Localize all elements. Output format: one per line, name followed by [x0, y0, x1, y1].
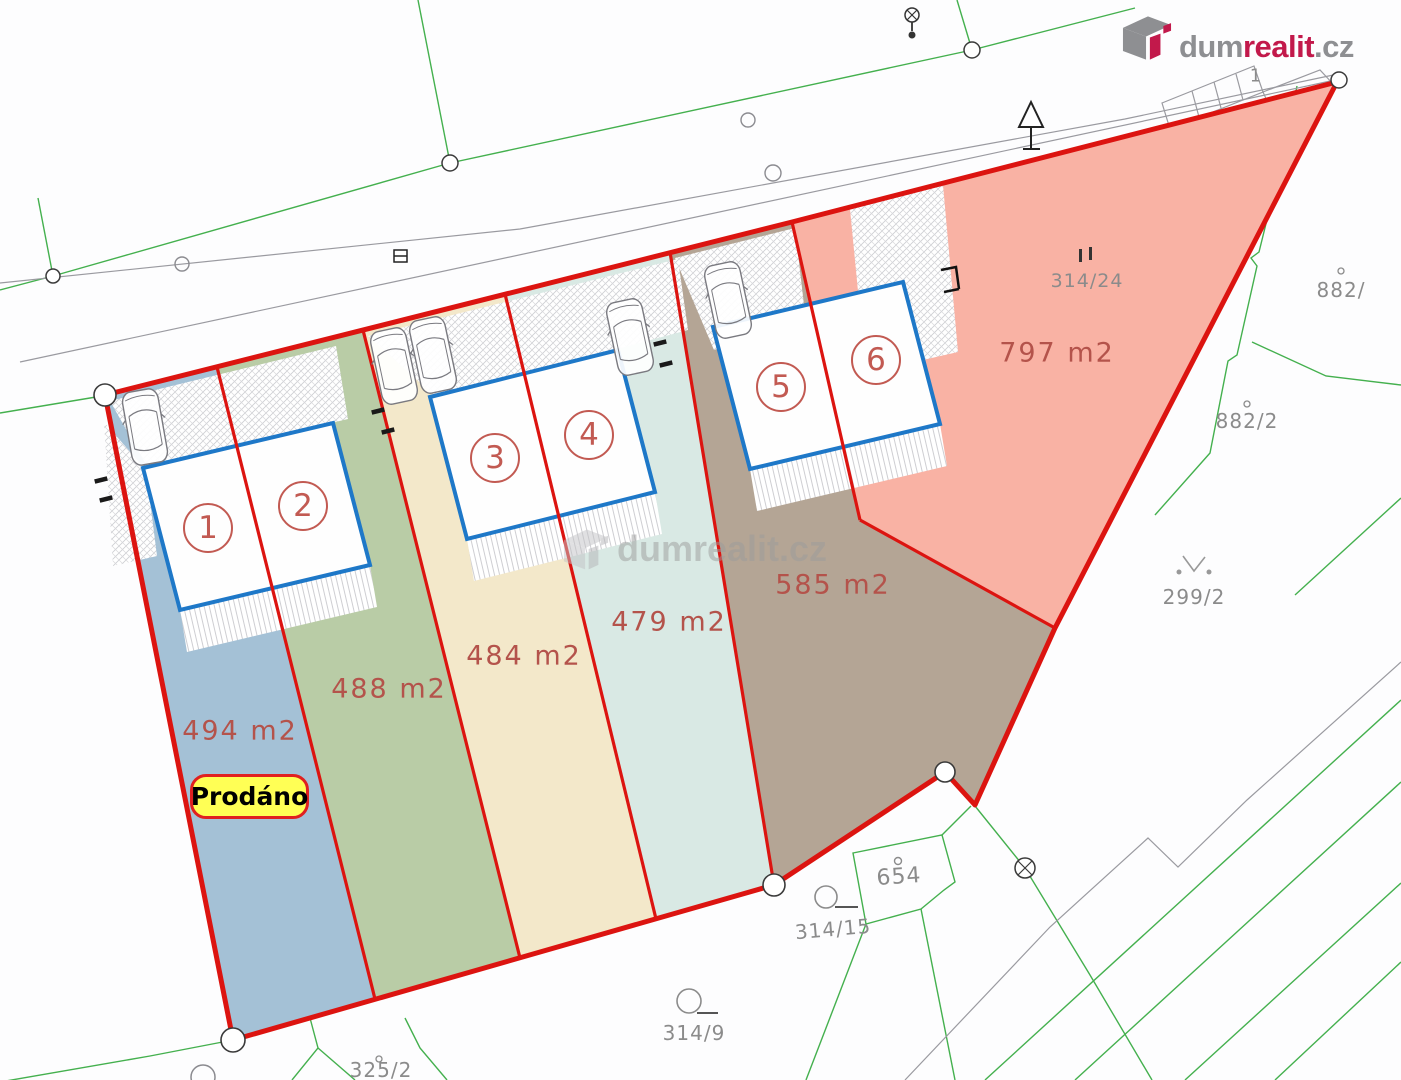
cadastral-line — [418, 0, 450, 163]
plot-5-area-label: 585 m2 — [775, 570, 891, 601]
boundary-corner-marker — [1331, 72, 1347, 88]
cadastral-line — [292, 1018, 318, 1080]
cadastral-site-plan: dumrealit.cz 494 m2 488 m2 484 m2 479 m2… — [0, 0, 1401, 1080]
parcel-label-325-2: 325/2 — [350, 1058, 413, 1080]
street-lamp-icon — [905, 8, 919, 39]
watermark: dumrealit.cz — [563, 527, 827, 571]
boundary-corner-marker — [221, 1028, 245, 1052]
utility-box-icon — [394, 250, 407, 262]
cadastral-line — [0, 1040, 233, 1080]
survey-point-marker — [964, 42, 980, 58]
signpost-triangle-icon — [1019, 102, 1043, 149]
crossing-point-marker — [1015, 858, 1035, 878]
brand-text-dum: dum — [1179, 29, 1243, 64]
watermark-text: dumrealit.cz — [617, 531, 827, 567]
cadastral-line — [921, 909, 955, 1080]
plot-4-area-label: 479 m2 — [611, 607, 727, 638]
parcel-314-9-symbol — [677, 989, 718, 1013]
survey-point-marker — [46, 269, 60, 283]
cadastral-line — [38, 198, 53, 276]
cadastral-line — [975, 806, 1152, 1080]
plot-6-area-label: 797 m2 — [999, 338, 1115, 369]
plot-2-number: 2 — [278, 481, 328, 531]
plot-1-number: 1 — [183, 503, 233, 553]
plot-3-area-label: 484 m2 — [466, 641, 582, 672]
parcel-label-299-2: 299/2 — [1163, 585, 1226, 609]
parcel-label-314-9: 314/9 — [663, 1021, 726, 1045]
outbuilding-divider — [1236, 74, 1243, 100]
brand-logo: dumrealit.cz — [1122, 14, 1354, 61]
parcel-882-2-dot — [1244, 401, 1250, 407]
brand-logo-text: dumrealit.cz — [1179, 32, 1354, 61]
plot-3-number: 3 — [470, 433, 520, 483]
plot-5-number: 5 — [756, 362, 806, 412]
brand-text-realit: realit — [1243, 29, 1314, 64]
brand-logo-icon — [1122, 14, 1172, 61]
tree-circle-icon — [191, 1065, 215, 1080]
parcel-label-1: 1 — [1250, 66, 1262, 87]
boundary-corner-marker — [763, 874, 785, 896]
brand-text-cz: .cz — [1314, 29, 1354, 64]
plot-6-number: 6 — [851, 335, 901, 385]
survey-point-marker — [442, 155, 458, 171]
cadastral-line — [1275, 962, 1401, 1080]
sold-badge: Prodáno — [190, 774, 309, 819]
parcel-299-2-symbol — [1177, 556, 1212, 575]
outbuilding-divider — [1214, 82, 1221, 108]
plot-2-area-label: 488 m2 — [331, 674, 447, 705]
cadastral-line — [1295, 498, 1401, 595]
cadastral-line — [806, 924, 866, 1080]
cadastral-line — [1075, 782, 1401, 1080]
plot-4-number: 4 — [564, 410, 614, 460]
parcel-314-15-symbol — [815, 886, 858, 908]
cadastral-line — [1185, 883, 1401, 1080]
cadastral-line — [1252, 342, 1401, 385]
parcel-882-dot — [1338, 268, 1344, 274]
plot-1-area-label: 494 m2 — [182, 716, 298, 747]
cadastral-line — [0, 396, 102, 413]
parcel-label-882-2: 882/2 — [1216, 409, 1279, 433]
boundary-corner-marker — [935, 762, 955, 782]
parcel-label-654: 654 — [876, 863, 923, 891]
manhole-circle-icon — [765, 165, 781, 181]
boundary-corner-marker — [94, 384, 116, 406]
parcel-label-882: 882/ — [1317, 278, 1366, 302]
manhole-circle-icon — [741, 113, 755, 127]
cadastral-line — [985, 700, 1401, 1080]
parcel-label-314-24: 314/24 — [1051, 270, 1124, 292]
watermark-logo-icon — [563, 527, 609, 571]
cadastral-line — [942, 806, 971, 835]
